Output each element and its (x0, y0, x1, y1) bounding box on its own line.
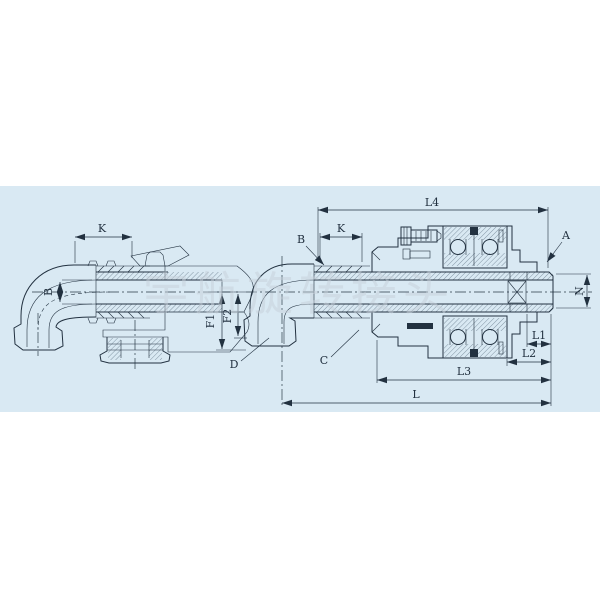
dim-n-label: N (573, 286, 586, 296)
label-c-text: C (320, 354, 328, 367)
seal-lower (470, 349, 478, 357)
left-dim-k-label: K (98, 222, 107, 235)
dim-l2-label: L2 (522, 347, 536, 360)
rotary-joint-drawing: K B (0, 0, 600, 600)
dim-l4-label: L4 (425, 196, 439, 209)
dim-l3-label: L3 (457, 365, 471, 378)
seal-bar (407, 323, 433, 329)
left-dim-b-label: B (42, 288, 55, 296)
dim-l-label: L (412, 388, 420, 401)
seal-upper (470, 227, 478, 235)
dim-l1-label: L1 (532, 329, 546, 342)
watermark-text: 宇航旋转接头 (143, 267, 455, 321)
dim-k-right-label: K (337, 222, 346, 235)
label-b-right-text: B (297, 233, 305, 246)
label-d-text: D (230, 358, 239, 371)
label-a-text: A (561, 229, 571, 242)
